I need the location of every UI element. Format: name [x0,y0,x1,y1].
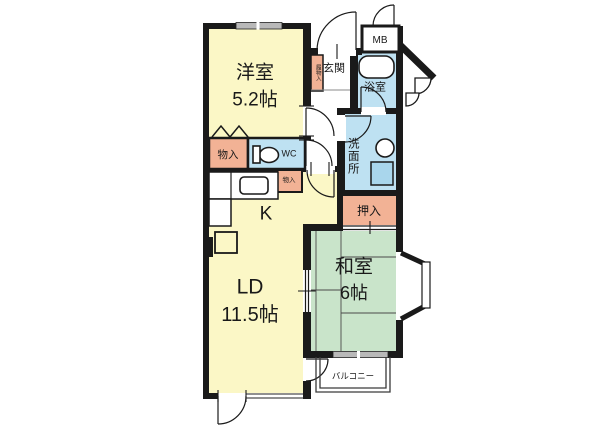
meter-box-label: MB [373,36,388,46]
wc-label: WC [282,150,297,159]
storage-west-label: 物入 [218,150,239,161]
bathtub-icon [359,56,394,78]
toilet-tank-icon [253,146,260,163]
washing-machine-icon [376,139,394,157]
japanese-room-size-label: 6帖 [340,284,368,302]
living-dining-label: LD [237,277,264,298]
window-japanese-room [333,352,388,358]
toilet-icon [260,148,279,163]
kitchen-label: K [260,205,273,224]
balcony-label: バルコニー [329,372,377,381]
living-dining-size-label: 11.5帖 [221,305,278,325]
pillar [203,237,213,257]
closet-label: 押入 [357,205,381,217]
meter-box-door [373,5,394,26]
kitchen-counter-side [209,199,231,226]
kitchen-pass-floor [303,172,337,224]
storage-hall-label: 物入 [283,178,296,185]
refrigerator-space-icon [215,232,237,253]
entrance-label: 玄関 [323,64,345,75]
western-room-label: 洋室 [236,64,274,83]
washbasin-icon [371,162,393,185]
japanese-room-label: 和室 [335,258,373,277]
kitchen-sink-icon [240,177,268,194]
bathroom-label: 浴室 [364,83,386,94]
shoe-storage-label: 履物入 [314,65,320,82]
western-room-size-label: 5.2帖 [232,91,277,110]
floor-plan: 洋室 5.2帖 玄関 履物入 MB 浴室 洗面所 WC 物入 物入 K LD 1… [0,0,600,431]
washroom-label: 洗面所 [346,137,358,175]
corner-angled-door [400,45,434,106]
floor-plan-drawing [0,0,600,431]
terrace-door [218,396,246,424]
bay-window [401,253,430,319]
